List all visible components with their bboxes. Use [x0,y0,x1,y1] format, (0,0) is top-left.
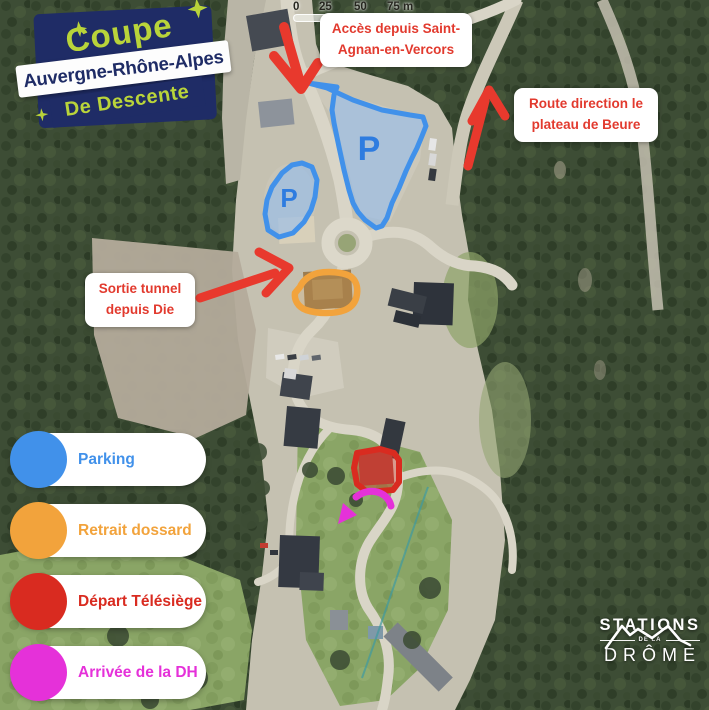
route-arrow [468,90,505,166]
event-map-poster: P P 0 25 5 [0,0,709,710]
parking-color-dot [10,431,67,488]
access-label: Accès depuis Saint-Agnan-en-Vercors [320,13,472,67]
tunnel-arrow [200,252,289,298]
sparkle-icon [35,108,49,122]
mountain-ridge-icon [594,618,694,650]
event-title: Coupe Auvergne-Rhône-Alpes De Descente [11,1,236,129]
scale-tick: 75 m [387,1,413,13]
legend-item-depart-telesiege: Départ Télésiège [11,575,206,628]
sparkle-icon [70,20,88,38]
sparkle-icon [186,0,208,20]
scale-tick: 25 [319,1,332,13]
logo-divider [600,640,635,641]
scale-tick: 0 [293,1,299,13]
legend: Parking Retrait dossard Départ Télésiège… [11,433,206,710]
arrivee-dh-arrow [338,491,391,524]
legend-item-parking: Parking [11,433,206,486]
legend-label: Retrait dossard [78,504,192,557]
retrait-dossard-color-dot [10,502,67,559]
legend-item-arrivee-dh: Arrivée de la DH [11,646,206,699]
depart-telesiege-zone [354,449,399,492]
legend-label: Départ Télésiège [78,575,202,628]
route-label: Route direction le plateau de Beure [514,88,658,142]
access-arrow [274,27,318,89]
legend-label: Arrivée de la DH [78,646,198,699]
retrait-dossard-zone [295,272,357,313]
legend-item-retrait-dossard: Retrait dossard [11,504,206,557]
depart-telesiege-color-dot [10,573,67,630]
logo-divider [666,640,701,641]
stations-de-la-drome-logo: STATIONS DE LA DRÔME [594,618,706,666]
parking-letter-large: P [358,130,381,168]
scale-tick: 50 [354,1,367,13]
legend-label: Parking [78,433,135,486]
tunnel-label: Sortie tunnel depuis Die [85,273,195,327]
arrivee-dh-color-dot [10,644,67,701]
parking-letter-small: P [280,183,297,213]
